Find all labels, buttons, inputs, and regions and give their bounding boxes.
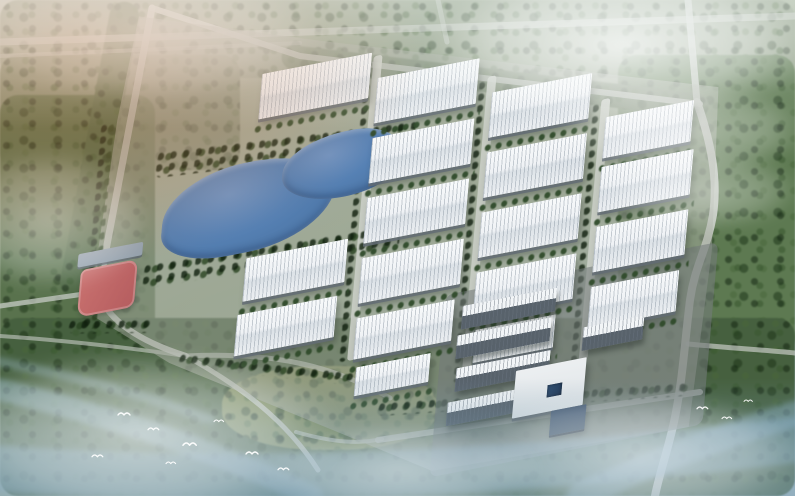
bird [744, 400, 752, 401]
bird [166, 462, 176, 464]
bird [214, 420, 224, 422]
aerial-rendering-scene [0, 0, 795, 496]
bird [722, 417, 732, 419]
bird [246, 452, 258, 454]
bird [697, 407, 708, 409]
bird [278, 468, 289, 470]
bird [92, 455, 103, 457]
bird [148, 428, 159, 430]
bird-flock [0, 0, 795, 496]
bird [183, 443, 196, 445]
bird [118, 413, 130, 415]
